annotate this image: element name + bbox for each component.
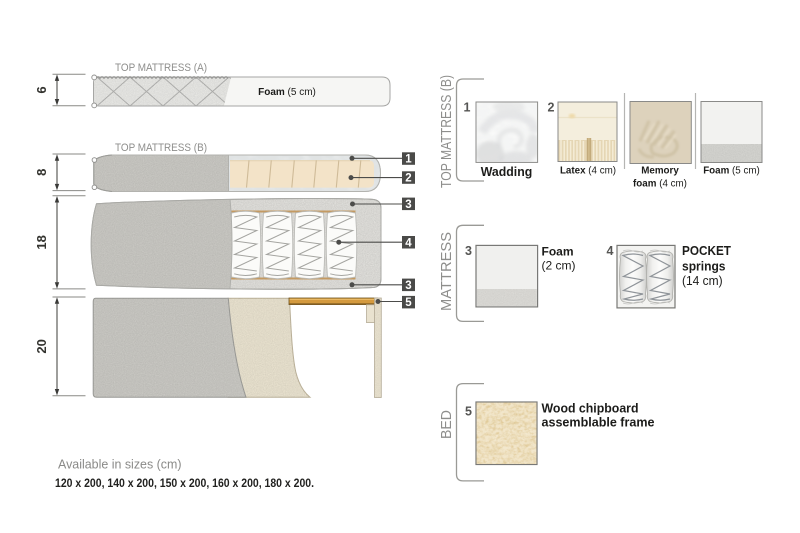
svg-text:TOP MATTRESS (B): TOP MATTRESS (B): [439, 75, 455, 188]
svg-text:4: 4: [405, 237, 412, 249]
svg-text:Foam: Foam: [542, 245, 574, 259]
svg-text:5: 5: [405, 297, 412, 309]
svg-text:Foam (5 cm): Foam (5 cm): [703, 166, 760, 177]
svg-text:springs: springs: [682, 260, 726, 274]
svg-text:assemblable frame: assemblable frame: [542, 414, 655, 429]
svg-text:3: 3: [465, 244, 472, 258]
svg-text:4: 4: [607, 244, 614, 258]
svg-text:BED: BED: [439, 410, 455, 439]
svg-text:MATTRESS: MATTRESS: [439, 232, 455, 311]
svg-text:Available in sizes (cm): Available in sizes (cm): [58, 457, 182, 472]
svg-text:8: 8: [34, 169, 49, 176]
svg-text:3: 3: [405, 199, 411, 211]
svg-text:TOP MATTRESS (A): TOP MATTRESS (A): [115, 62, 207, 74]
svg-text:Foam (5 cm): Foam (5 cm): [258, 87, 316, 98]
svg-text:3: 3: [405, 280, 411, 292]
svg-text:(2 cm): (2 cm): [542, 259, 576, 273]
svg-text:foam (4 cm): foam (4 cm): [633, 178, 687, 189]
svg-text:Memory: Memory: [641, 166, 679, 177]
svg-text:18: 18: [34, 235, 49, 249]
svg-text:2: 2: [405, 173, 411, 185]
svg-text:TOP MATTRESS (B): TOP MATTRESS (B): [115, 142, 207, 154]
svg-text:6: 6: [34, 86, 49, 93]
svg-text:1: 1: [464, 101, 471, 115]
svg-text:20: 20: [34, 339, 49, 353]
svg-text:POCKET: POCKET: [682, 244, 731, 258]
svg-text:Wadding: Wadding: [481, 165, 533, 179]
svg-text:Wood chipboard: Wood chipboard: [542, 400, 639, 415]
svg-text:1: 1: [405, 154, 412, 166]
svg-text:2: 2: [548, 101, 555, 115]
svg-text:(14 cm): (14 cm): [682, 274, 723, 288]
svg-text:120 x 200, 140 x 200, 150 x 20: 120 x 200, 140 x 200, 150 x 200, 160 x 2…: [55, 476, 314, 490]
svg-text:Latex (4 cm): Latex (4 cm): [560, 166, 616, 177]
svg-text:5: 5: [465, 405, 472, 419]
